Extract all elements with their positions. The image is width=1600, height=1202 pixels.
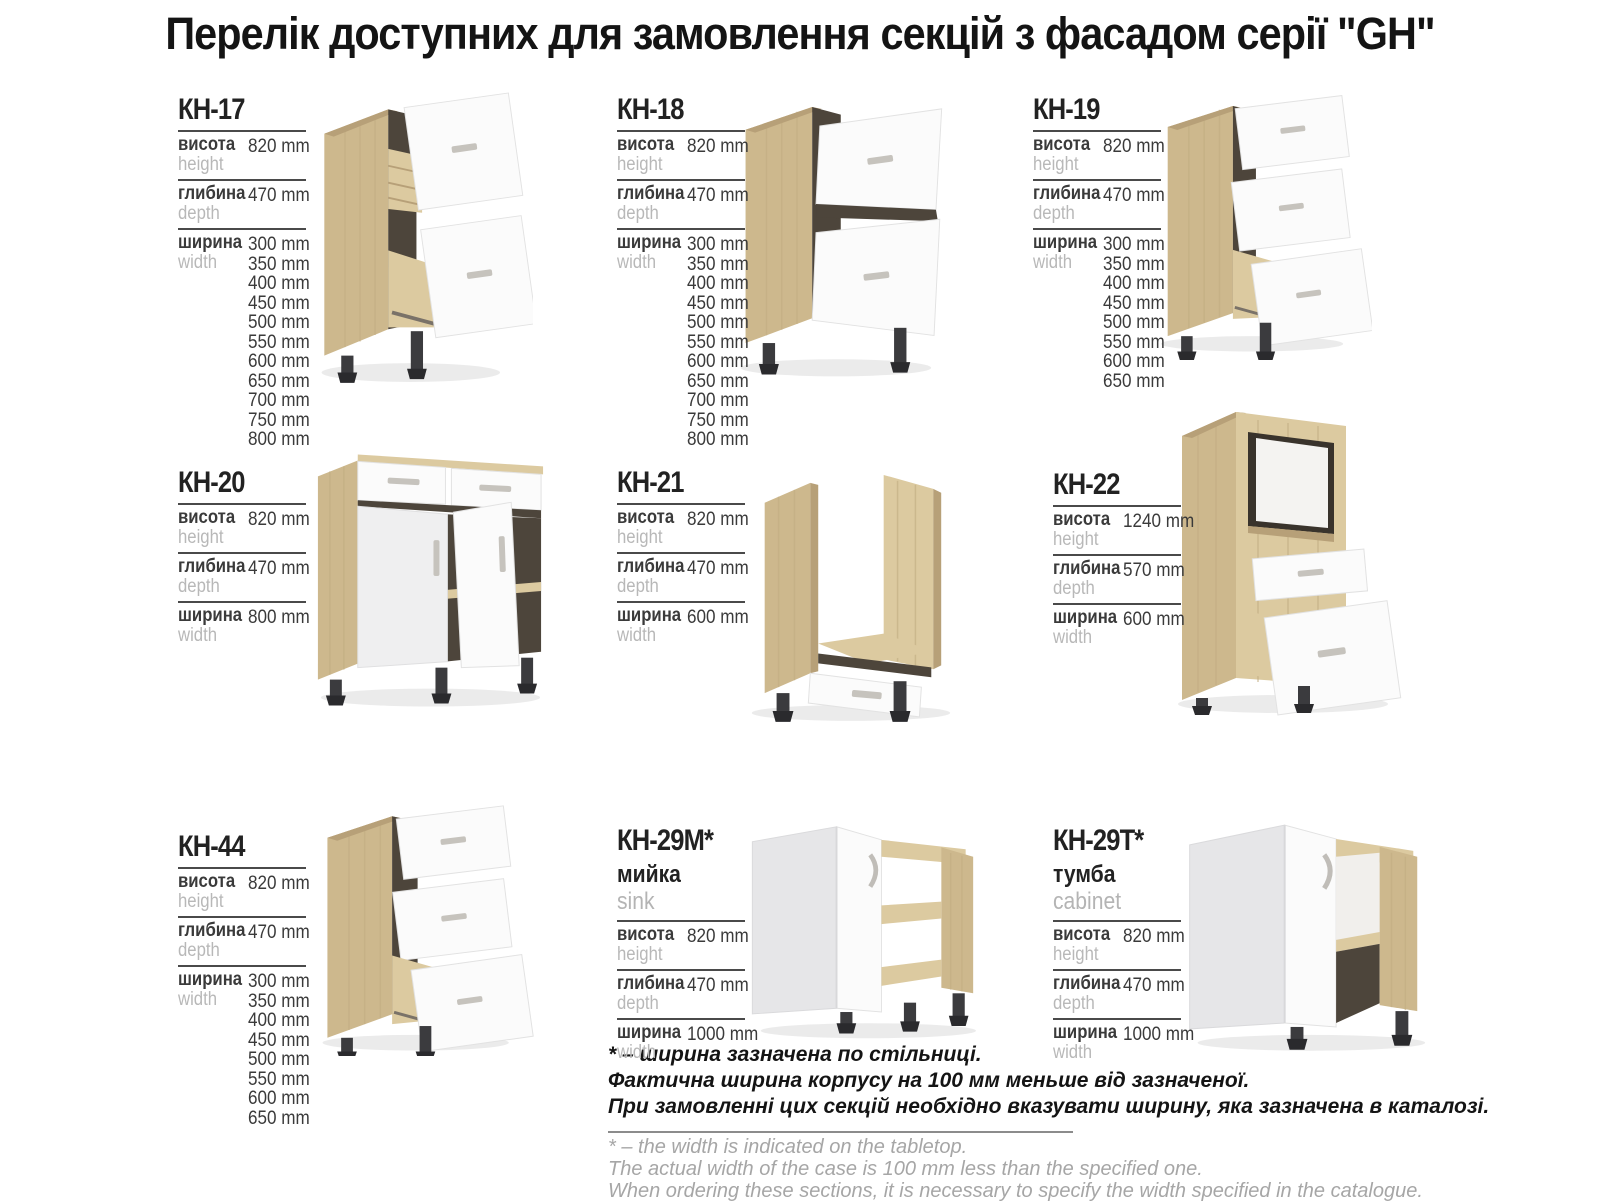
cabinet-image-kn-29t: [1158, 800, 1440, 1055]
model-name: КН-21: [617, 468, 726, 498]
width-values: 600 mm: [1123, 608, 1185, 648]
label-depth-uk: глибина: [617, 557, 679, 577]
label-depth-en: depth: [617, 994, 679, 1014]
height-value: 820 mm: [248, 508, 310, 548]
product-card-kn-20: КН-20 висота height 820 mm глибина depth…: [178, 468, 306, 650]
label-depth-en: depth: [1033, 204, 1095, 224]
height-value: 1240 mm: [1123, 510, 1194, 550]
spec-row-height: висота height 820 mm: [617, 505, 745, 552]
height-value: 820 mm: [687, 135, 749, 175]
label-depth-uk: глибина: [178, 921, 240, 941]
depth-value: 570 mm: [1123, 559, 1185, 599]
spec-row-width: ширина width 300 mm 350 mm 400 mm 450 mm…: [178, 967, 306, 1132]
spec-row-height: висота height 1240 mm: [1053, 507, 1181, 554]
label-height-uk: висота: [1053, 925, 1115, 945]
label-height-en: height: [178, 155, 240, 175]
spec-table: КН-29Т* тумба cabinet висота height 820 …: [1053, 826, 1181, 1067]
label-height-uk: висота: [617, 925, 679, 945]
width-values: 1000 mm: [687, 1023, 758, 1063]
cabinet-image-kn-18: [717, 85, 955, 385]
height-value: 820 mm: [687, 508, 749, 548]
label-depth-uk: глибина: [178, 557, 240, 577]
spec-table: КН-17 висота height 820 mm глибина depth…: [178, 95, 306, 454]
spec-table: КН-22 висота height 1240 mm глибина dept…: [1053, 470, 1181, 652]
model-name: КН-29М*: [617, 826, 726, 856]
label-width-uk: ширина: [617, 233, 679, 253]
spec-row-depth: глибина depth 470 mm: [617, 554, 745, 601]
height-value: 820 mm: [687, 925, 749, 965]
height-value: 820 mm: [248, 872, 310, 912]
model-name: КН-22: [1053, 470, 1162, 500]
depth-value: 470 mm: [248, 921, 310, 961]
spec-row-width: ширина width 1000 mm: [617, 1020, 745, 1067]
spec-table: КН-29М* мийка sink висота height 820 mm …: [617, 826, 745, 1067]
label-height-en: height: [617, 528, 679, 548]
label-depth-en: depth: [617, 577, 679, 597]
spec-row-width: ширина width 300 mm 350 mm 400 mm 450 mm…: [617, 230, 745, 454]
spec-row-depth: глибина depth 470 mm: [178, 181, 306, 228]
cabinet-image-kn-22: [1148, 386, 1420, 716]
label-depth-en: depth: [1053, 579, 1115, 599]
cabinet-image-kn-44: [298, 800, 548, 1056]
label-height-uk: висота: [617, 135, 679, 155]
width-values: 300 mm 350 mm 400 mm 450 mm 500 mm 550 m…: [248, 970, 310, 1128]
model-name: КН-17: [178, 95, 287, 125]
spec-row-depth: глибина depth 470 mm: [617, 971, 745, 1018]
spec-table: КН-20 висота height 820 mm глибина depth…: [178, 468, 306, 650]
label-width-en: width: [178, 253, 240, 273]
depth-value: 470 mm: [687, 974, 749, 1014]
product-card-kn-19: КН-19 висота height 820 mm глибина depth…: [1033, 95, 1161, 395]
spec-row-width: ширина width 300 mm 350 mm 400 mm 450 mm…: [178, 230, 306, 454]
label-depth-uk: глибина: [617, 974, 679, 994]
spec-table: КН-44 висота height 820 mm глибина depth…: [178, 832, 306, 1132]
label-depth-uk: глибина: [617, 184, 679, 204]
label-depth-en: depth: [178, 941, 240, 961]
label-height-uk: висота: [178, 508, 240, 528]
spec-row-height: висота height 820 mm: [617, 132, 745, 179]
label-height-en: height: [178, 528, 240, 548]
depth-value: 470 mm: [1123, 974, 1185, 1014]
spec-row-height: висота height 820 mm: [1033, 132, 1161, 179]
label-height-en: height: [178, 892, 240, 912]
label-depth-en: depth: [178, 577, 240, 597]
model-name: КН-19: [1033, 95, 1142, 125]
label-width-uk: ширина: [1053, 1023, 1115, 1043]
product-type-uk: мийка: [617, 861, 730, 888]
product-card-kn-29t: КН-29Т* тумба cabinet висота height 820 …: [1053, 826, 1181, 1067]
model-name: КН-44: [178, 832, 287, 862]
width-values: 300 mm 350 mm 400 mm 450 mm 500 mm 550 m…: [687, 233, 749, 450]
product-card-kn-21: КН-21 висота height 820 mm глибина depth…: [617, 468, 745, 650]
label-width-uk: ширина: [617, 1023, 679, 1043]
product-card-kn-22: КН-22 висота height 1240 mm глибина dept…: [1053, 470, 1181, 652]
spec-row-depth: глибина depth 570 mm: [1053, 556, 1181, 603]
depth-value: 470 mm: [687, 557, 749, 597]
spec-row-height: висота height 820 mm: [178, 869, 306, 916]
spec-row-depth: глибина depth 470 mm: [1033, 181, 1161, 228]
label-height-uk: висота: [178, 872, 240, 892]
label-height-en: height: [617, 945, 679, 965]
label-width-en: width: [617, 626, 679, 646]
spec-row-depth: глибина depth 470 mm: [178, 554, 306, 601]
cabinet-image-kn-21: [727, 448, 965, 726]
width-values: 1000 mm: [1123, 1023, 1194, 1063]
spec-row-width: ширина width 300 mm 350 mm 400 mm 450 mm…: [1033, 230, 1161, 395]
depth-value: 470 mm: [687, 184, 749, 224]
label-width-en: width: [178, 990, 240, 1010]
cabinet-image-kn-19: [1137, 85, 1372, 360]
spec-row-depth: глибина depth 470 mm: [178, 918, 306, 965]
spec-row-height: висота height 820 mm: [178, 132, 306, 179]
spec-row-height: висота height 820 mm: [1053, 922, 1181, 969]
label-width-uk: ширина: [178, 970, 240, 990]
label-depth-en: depth: [617, 204, 679, 224]
spec-row-width: ширина width 800 mm: [178, 603, 306, 650]
label-width-uk: ширина: [1033, 233, 1095, 253]
spec-table: КН-21 висота height 820 mm глибина depth…: [617, 468, 745, 650]
label-width-uk: ширина: [617, 606, 679, 626]
cabinet-image-kn-17: [298, 81, 533, 399]
product-card-kn-17: КН-17 висота height 820 mm глибина depth…: [178, 95, 306, 454]
width-values: 300 mm 350 mm 400 mm 450 mm 500 mm 550 m…: [1103, 233, 1165, 391]
product-type-en: cabinet: [1053, 888, 1166, 915]
spec-table: КН-19 висота height 820 mm глибина depth…: [1033, 95, 1161, 395]
product-card-kn-29m: КН-29М* мийка sink висота height 820 mm …: [617, 826, 745, 1067]
cabinet-image-kn-29m: [728, 800, 990, 1050]
height-value: 820 mm: [1123, 925, 1185, 965]
product-card-kn-18: КН-18 висота height 820 mm глибина depth…: [617, 95, 745, 454]
footnote-english: * – the width is indicated on the tablet…: [608, 1136, 1423, 1202]
model-name: КН-18: [617, 95, 726, 125]
label-depth-en: depth: [178, 204, 240, 224]
label-width-uk: ширина: [178, 606, 240, 626]
label-width-en: width: [617, 1043, 679, 1063]
cabinet-image-kn-20: [296, 440, 560, 712]
product-type-uk: тумба: [1053, 861, 1166, 888]
height-value: 820 mm: [248, 135, 310, 175]
spec-table: КН-18 висота height 820 mm глибина depth…: [617, 95, 745, 454]
depth-value: 470 mm: [1103, 184, 1165, 224]
label-width-en: width: [1053, 1043, 1115, 1063]
label-depth-uk: глибина: [1053, 974, 1115, 994]
label-height-en: height: [617, 155, 679, 175]
spec-row-depth: глибина depth 470 mm: [1053, 971, 1181, 1018]
label-width-uk: ширина: [1053, 608, 1115, 628]
spec-row-height: висота height 820 mm: [617, 922, 745, 969]
label-width-en: width: [617, 253, 679, 273]
page-title: Перелік доступних для замовлення секцій …: [64, 8, 1536, 60]
product-type-en: sink: [617, 888, 730, 915]
label-height-en: height: [1033, 155, 1095, 175]
spec-row-height: висота height 820 mm: [178, 505, 306, 552]
spec-row-width: ширина width 600 mm: [1053, 605, 1181, 652]
model-name: КН-29Т*: [1053, 826, 1162, 856]
label-depth-uk: глибина: [1033, 184, 1095, 204]
width-values: 800 mm: [248, 606, 310, 646]
depth-value: 470 mm: [248, 557, 310, 597]
width-values: 300 mm 350 mm 400 mm 450 mm 500 mm 550 m…: [248, 233, 310, 450]
label-height-uk: висота: [1033, 135, 1095, 155]
product-card-kn-44: КН-44 висота height 820 mm глибина depth…: [178, 832, 306, 1132]
height-value: 820 mm: [1103, 135, 1165, 175]
label-width-en: width: [1033, 253, 1095, 273]
label-width-uk: ширина: [178, 233, 240, 253]
label-height-uk: висота: [178, 135, 240, 155]
label-height-uk: висота: [1053, 510, 1115, 530]
label-height-en: height: [1053, 530, 1115, 550]
label-width-en: width: [178, 626, 240, 646]
spec-row-width: ширина width 1000 mm: [1053, 1020, 1181, 1067]
label-width-en: width: [1053, 628, 1115, 648]
footnote-divider: [608, 1131, 1073, 1133]
label-height-en: height: [1053, 945, 1115, 965]
width-values: 600 mm: [687, 606, 749, 646]
label-depth-uk: глибина: [1053, 559, 1115, 579]
label-height-uk: висота: [617, 508, 679, 528]
label-depth-en: depth: [1053, 994, 1115, 1014]
depth-value: 470 mm: [248, 184, 310, 224]
label-depth-uk: глибина: [178, 184, 240, 204]
model-name: КН-20: [178, 468, 287, 498]
spec-row-width: ширина width 600 mm: [617, 603, 745, 650]
spec-row-depth: глибина depth 470 mm: [617, 181, 745, 228]
